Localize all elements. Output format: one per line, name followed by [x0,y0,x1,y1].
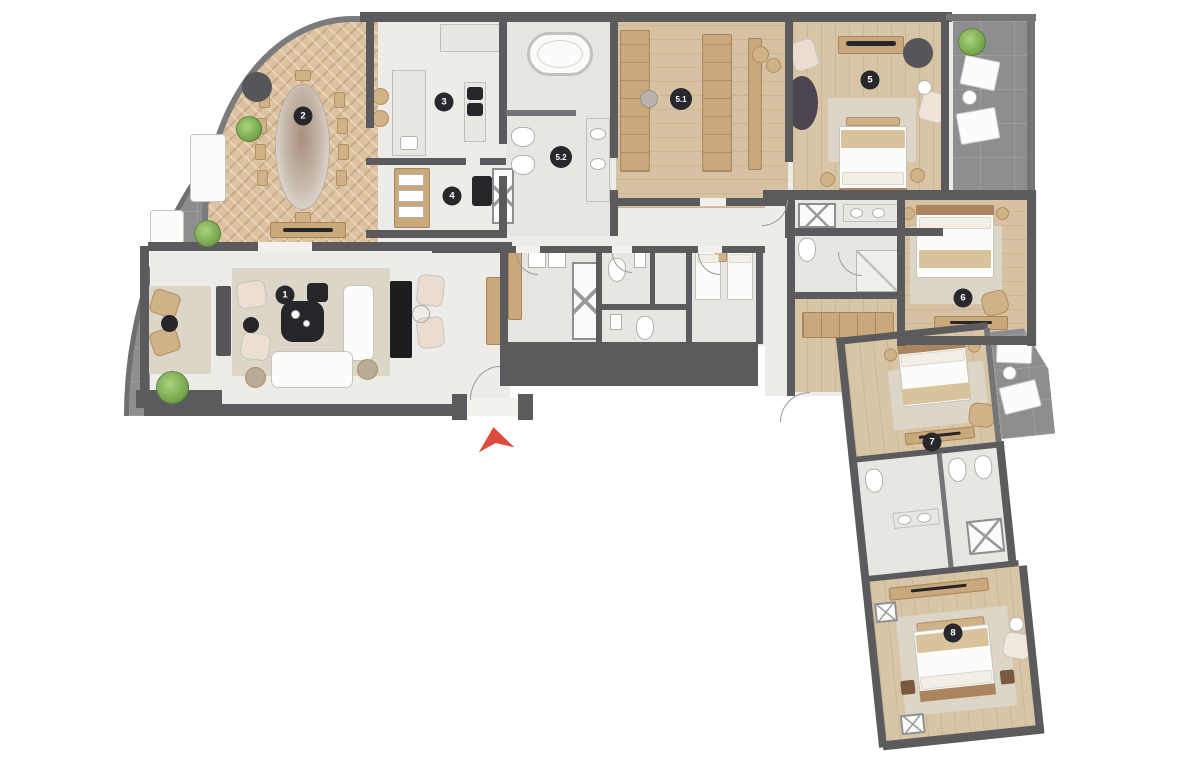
bidet [511,155,535,175]
tv-console [390,281,412,358]
vanity-sink [590,128,606,140]
room-badge-dressing: 5.1 [670,88,692,110]
armchair [239,331,271,362]
dressing-ottoman [640,90,658,108]
table-decor [291,310,300,319]
dining-chair [334,92,345,108]
wall [499,176,507,238]
wall [897,196,905,346]
room-badge-bedroom-8: 8 [944,624,963,643]
plant [236,116,262,142]
side-table [245,367,266,388]
tv [846,41,896,46]
wall [366,12,374,128]
wall [793,292,903,299]
dining-planter [242,72,272,102]
wall [600,304,690,310]
kitchen-stool [372,110,389,127]
shower [856,250,898,292]
room-badge-living: 1 [276,286,295,305]
entrance-jamb [518,394,533,420]
console-decor [283,228,333,232]
wall [686,248,692,344]
dining-chair [338,144,349,160]
plant [958,28,986,56]
lounge-chair [956,107,1001,145]
wall [610,12,618,158]
toilet [511,127,535,147]
kitchen-wall-counter [440,24,500,52]
armchair [235,279,267,310]
small-sink [610,314,622,330]
nightstand [910,168,925,183]
round-chair [903,38,933,68]
cooktop [472,176,492,206]
bed-blanket [919,250,991,268]
terrace-sofa [190,134,226,202]
oven-stack [467,103,483,116]
media-bench [216,286,231,356]
side-table [161,315,178,332]
room-badge-bedroom-7: 7 [923,433,942,452]
pantry-appliance [398,174,424,186]
wardrobe [702,34,732,172]
vanity-sink [850,208,863,218]
wall [785,12,793,162]
kitchen-sink [400,136,418,150]
door-opening [516,246,540,253]
wall [941,20,949,192]
south-wing [836,320,1055,756]
sofa [271,351,353,388]
side-table [243,317,259,333]
wall [500,342,758,386]
door-arc [780,392,810,422]
armchair [415,274,445,308]
room-badge-bedroom-6: 6 [954,289,973,308]
dining-chair [257,170,268,186]
pantry-appliance [398,206,424,218]
room-badge-master-bedroom: 5 [861,71,880,90]
wall [500,246,508,346]
nightstand [820,172,835,187]
nightstand [900,680,915,695]
shaft [874,601,898,623]
shaft [966,518,1005,556]
wall [366,230,506,238]
glass-table [412,305,430,323]
side-table [357,359,378,380]
table-decor [303,320,310,327]
wall [650,248,655,306]
wall [756,248,763,344]
bed-headboard [916,205,994,215]
kitchen-stool [372,88,389,105]
door-opening [698,246,722,253]
side-table [307,283,328,302]
wall [360,12,952,22]
plant [156,371,189,404]
vanity-sink [872,208,885,218]
wall [499,12,507,144]
room-badge-dining: 2 [294,107,313,126]
entrance-jamb [452,394,467,420]
dining-chair [295,70,311,81]
pantry-appliance [398,190,424,202]
wall [610,190,618,236]
side-table [917,80,932,95]
pouf [766,58,781,73]
wall [506,110,576,116]
floor-plan: 1 2 3 4 5 5.1 5.2 6 7 8 [0,0,1200,762]
room-badge-kitchen: 3 [435,93,454,112]
entrance-threshold [467,398,518,416]
bed-pillows [842,172,904,185]
wall [793,228,943,236]
shaft [572,262,598,340]
entrance-arrow [476,425,515,453]
wall [903,336,1036,345]
toilet [798,238,816,262]
dining-chair [337,118,348,134]
vanity-sink [590,158,606,170]
nightstand [996,207,1009,220]
small-sink [634,252,646,268]
wall [366,158,466,165]
door-opening [700,198,726,206]
terrace-table [962,90,977,105]
dining-chair [336,170,347,186]
room-badge-back-kitchen: 4 [443,187,462,206]
sofa [343,285,374,361]
door-opening [612,246,632,253]
door-opening [258,242,312,251]
wall [480,158,506,165]
nightstand [1000,669,1015,684]
wall [140,246,149,408]
bathtub-basin [537,40,583,68]
dining-table [275,84,330,210]
oven-stack [467,87,483,100]
wall [946,14,1036,21]
toilet [636,316,654,340]
bed-pillows [729,254,751,263]
wall [1027,198,1036,346]
dining-chair [255,144,266,160]
wall [144,404,464,416]
bed-bench [846,117,900,126]
plant [194,220,221,247]
bed-blanket [841,130,905,148]
wall [596,248,602,344]
room-badge-master-bath: 5.2 [550,146,572,168]
shaft [798,203,836,228]
shaft [900,713,926,735]
wall [1027,14,1035,194]
